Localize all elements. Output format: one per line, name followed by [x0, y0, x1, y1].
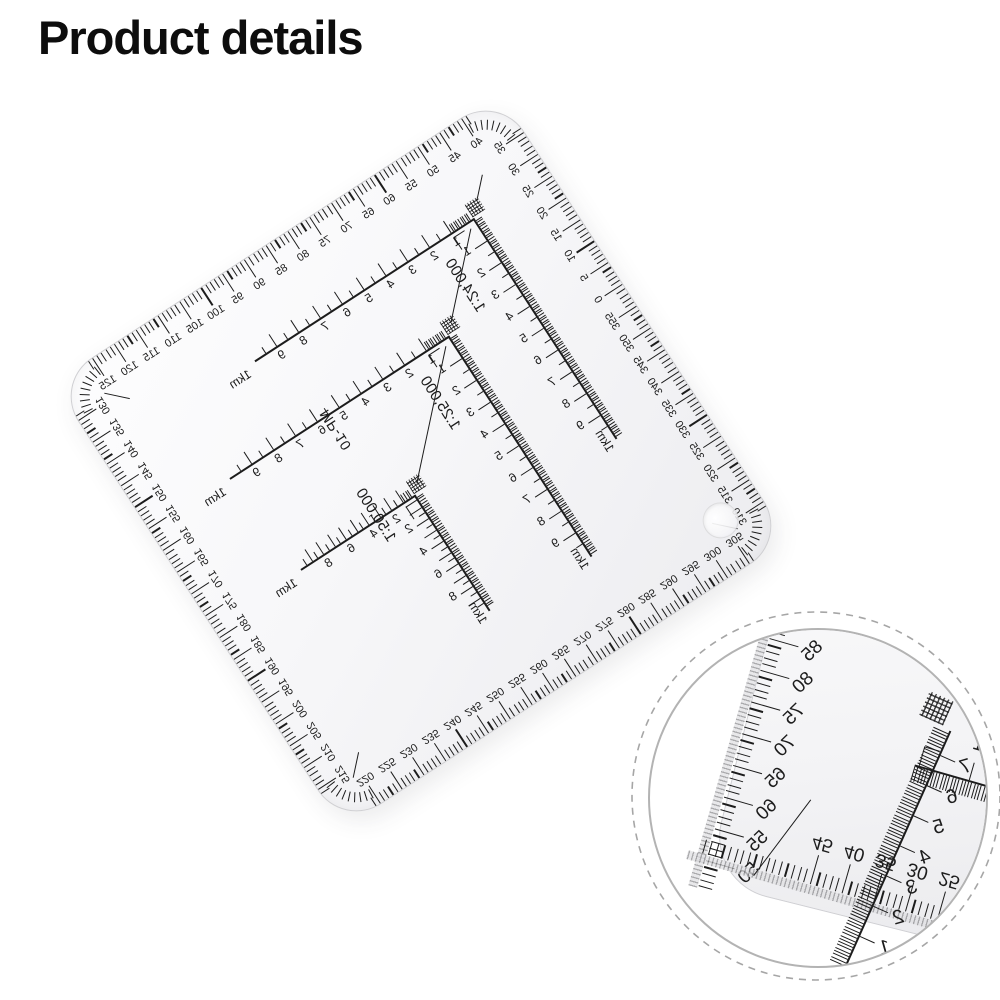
scale-unit-tick — [327, 535, 336, 547]
km-label: 1km — [272, 576, 299, 601]
bracket-line — [919, 746, 925, 766]
degree-tick — [981, 920, 986, 934]
degree-tick — [752, 854, 757, 868]
degree-tick — [762, 663, 776, 668]
degree-label: 20 — [964, 874, 988, 903]
degree-tick — [748, 714, 762, 719]
scale-unit-tick — [969, 763, 975, 781]
scale-half-tick — [348, 530, 353, 536]
degree-label: 85 — [794, 633, 831, 670]
degree-tick — [749, 708, 763, 713]
scale-half-tick — [314, 552, 319, 558]
degree-tick — [740, 850, 745, 864]
degree-tick — [757, 682, 771, 687]
scale-half-tick — [470, 592, 476, 597]
product-details-page: Product details 505560657075808590951015… — [0, 0, 1000, 1000]
degree-tick — [755, 689, 769, 694]
scale-half-tick — [441, 547, 447, 552]
scale-number: 3 — [894, 873, 929, 903]
scale-half-tick — [426, 524, 432, 529]
degree-tick — [784, 863, 789, 877]
degree-tick — [766, 650, 780, 655]
degree-label: 45 — [805, 828, 840, 857]
scale-unit-tick — [338, 527, 347, 539]
degree-tick — [714, 843, 719, 857]
degree-tick — [753, 695, 767, 700]
degree-tick — [731, 771, 745, 776]
scale-number: 2 — [881, 903, 916, 933]
degree-tick — [771, 631, 785, 636]
page-title: Product details — [38, 10, 363, 65]
degree-tick — [744, 727, 758, 732]
scale-half-tick — [448, 558, 454, 563]
degree-tick — [768, 644, 782, 649]
degree-tick — [975, 918, 980, 932]
degree-tick — [764, 657, 778, 662]
degree-tick — [746, 720, 760, 725]
degree-label: 90 — [803, 628, 840, 638]
scale-fine-tick — [986, 788, 988, 803]
degree-tick — [735, 758, 749, 763]
degree-tick — [803, 869, 808, 883]
scale-number: 1 — [867, 933, 902, 963]
degree-tick — [708, 841, 713, 855]
degree-tick — [778, 861, 783, 875]
scale-half-tick — [336, 537, 341, 543]
scale-number: 6 — [426, 563, 450, 586]
degree-tick — [702, 840, 707, 854]
scale-unit-tick — [304, 549, 313, 561]
degree-tick — [816, 872, 821, 886]
degree-tick — [822, 874, 827, 888]
degree-tick — [702, 873, 716, 878]
degree-tick — [740, 739, 754, 744]
scale-half-tick — [419, 513, 425, 518]
degree-tick — [962, 914, 967, 928]
degree-tick — [829, 876, 834, 890]
degree-tick — [949, 910, 954, 924]
degree-tick — [758, 676, 772, 681]
degree-label: 80 — [785, 665, 822, 702]
scale-unit-tick — [315, 542, 324, 554]
degree-tick — [797, 867, 802, 881]
degree-tick — [700, 879, 714, 884]
inset-zoom-circle: 5055606570758085909510152025303540451234… — [648, 628, 988, 968]
scale-unit-tick — [349, 520, 358, 532]
degree-tick — [943, 909, 948, 923]
degree-tick — [791, 865, 796, 879]
degree-tick — [771, 860, 776, 874]
scale-number: 1 — [961, 730, 988, 760]
scale-number: 5 — [921, 812, 956, 842]
degree-tick — [727, 847, 732, 861]
degree-tick — [955, 912, 960, 926]
degree-tick — [733, 849, 738, 863]
scale-half-tick — [456, 569, 462, 574]
scale-half-tick — [463, 580, 469, 585]
degree-tick — [737, 752, 751, 757]
scale-half-tick — [302, 559, 307, 565]
scale-half-tick — [359, 522, 364, 528]
degree-tick — [930, 905, 935, 919]
bracket-line — [924, 746, 940, 751]
degree-label: 75 — [776, 697, 813, 734]
degree-tick — [698, 885, 712, 890]
scale-unit-tick — [383, 498, 392, 510]
degree-tick — [738, 746, 752, 751]
scale-number: 4 — [908, 842, 943, 872]
scale-half-tick — [393, 500, 398, 506]
scale-number: 8 — [441, 585, 465, 608]
degree-tick — [721, 845, 726, 859]
degree-tick — [746, 852, 751, 866]
scale-half-tick — [434, 535, 440, 540]
scale-half-tick — [325, 544, 330, 550]
scale-number: 4 — [411, 540, 435, 563]
degree-label: 70 — [767, 728, 804, 765]
